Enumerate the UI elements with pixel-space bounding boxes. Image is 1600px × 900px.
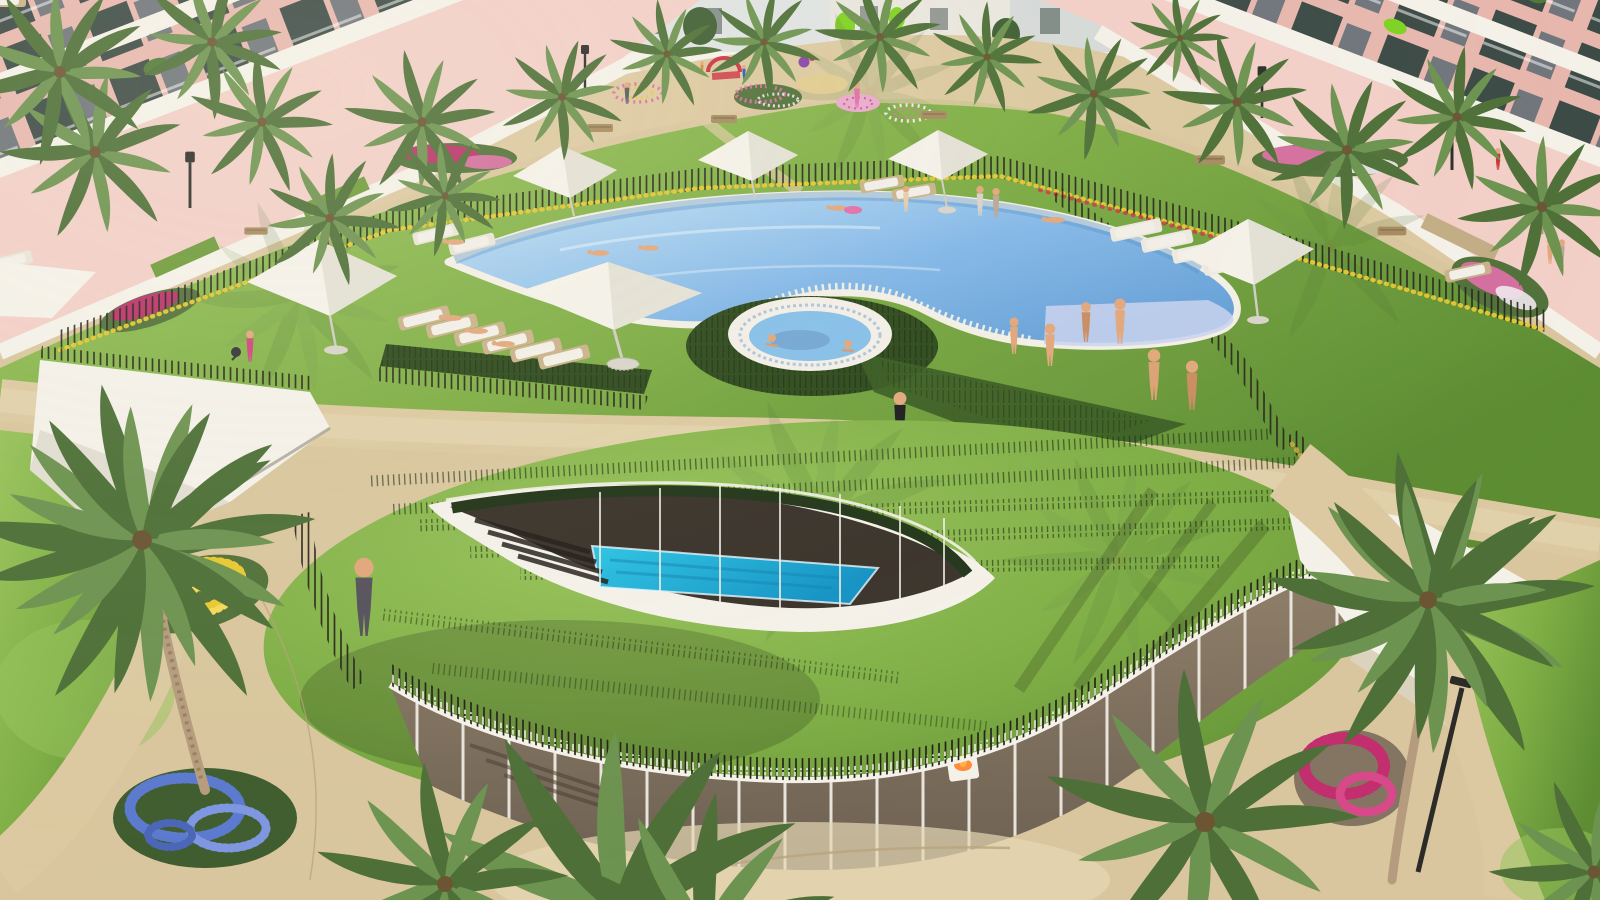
render-viewport: [0, 0, 1600, 900]
sunlight-overlay: [0, 0, 1600, 900]
resort-aerial-render: [0, 0, 1600, 900]
